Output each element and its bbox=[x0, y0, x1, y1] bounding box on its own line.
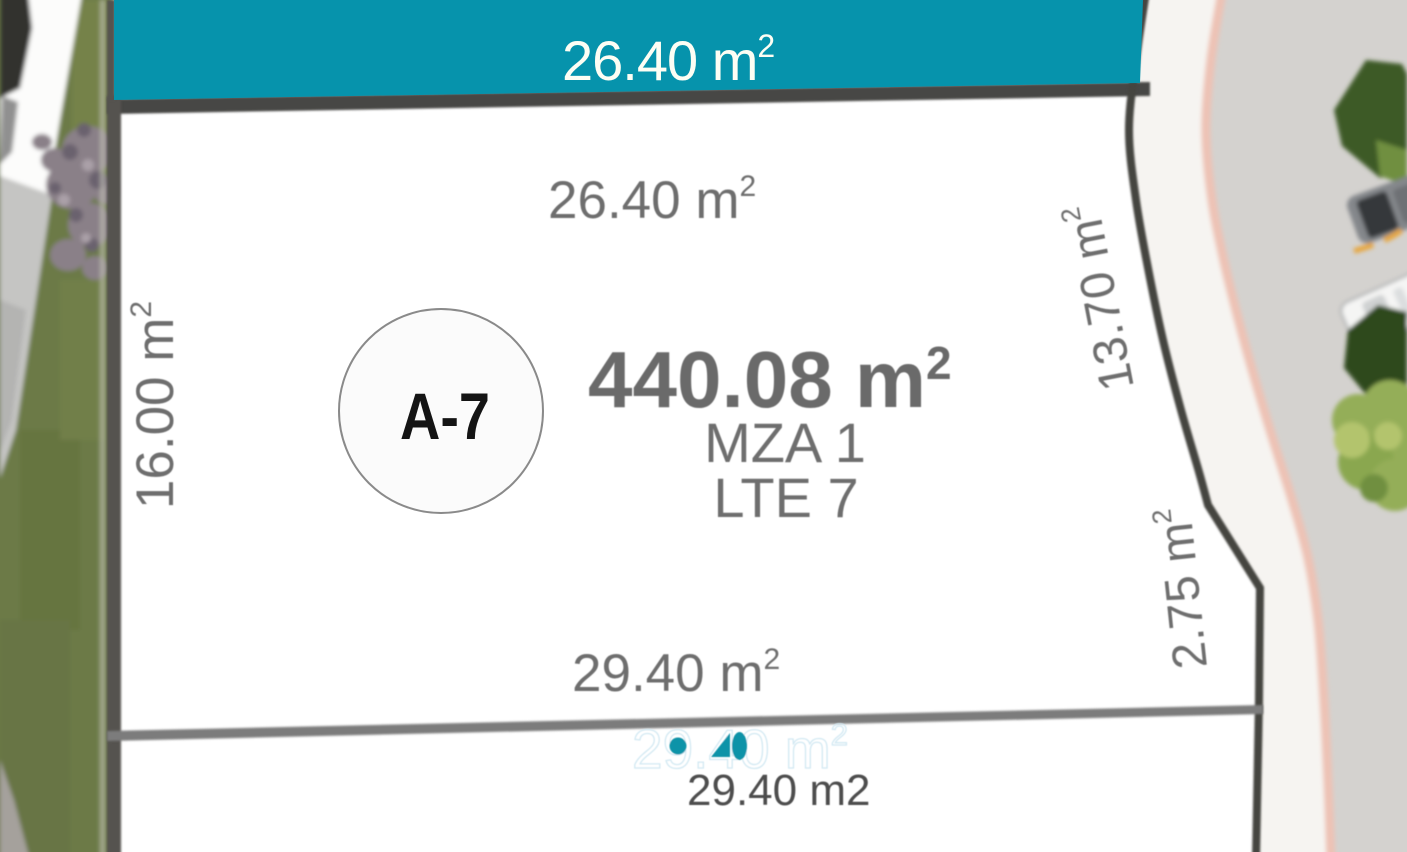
svg-text:29.40 m2: 29.40 m2 bbox=[687, 766, 870, 815]
svg-text:26.40 m2: 26.40 m2 bbox=[548, 170, 756, 230]
svg-text:29.40 m2: 29.40 m2 bbox=[572, 643, 780, 703]
svg-text:26.40 m2: 26.40 m2 bbox=[562, 28, 774, 92]
svg-text:MZA 1: MZA 1 bbox=[704, 411, 866, 474]
svg-text:LTE 7: LTE 7 bbox=[713, 466, 858, 529]
svg-text:16.00 m2: 16.00 m2 bbox=[125, 301, 185, 509]
svg-text:A-7: A-7 bbox=[400, 379, 490, 453]
